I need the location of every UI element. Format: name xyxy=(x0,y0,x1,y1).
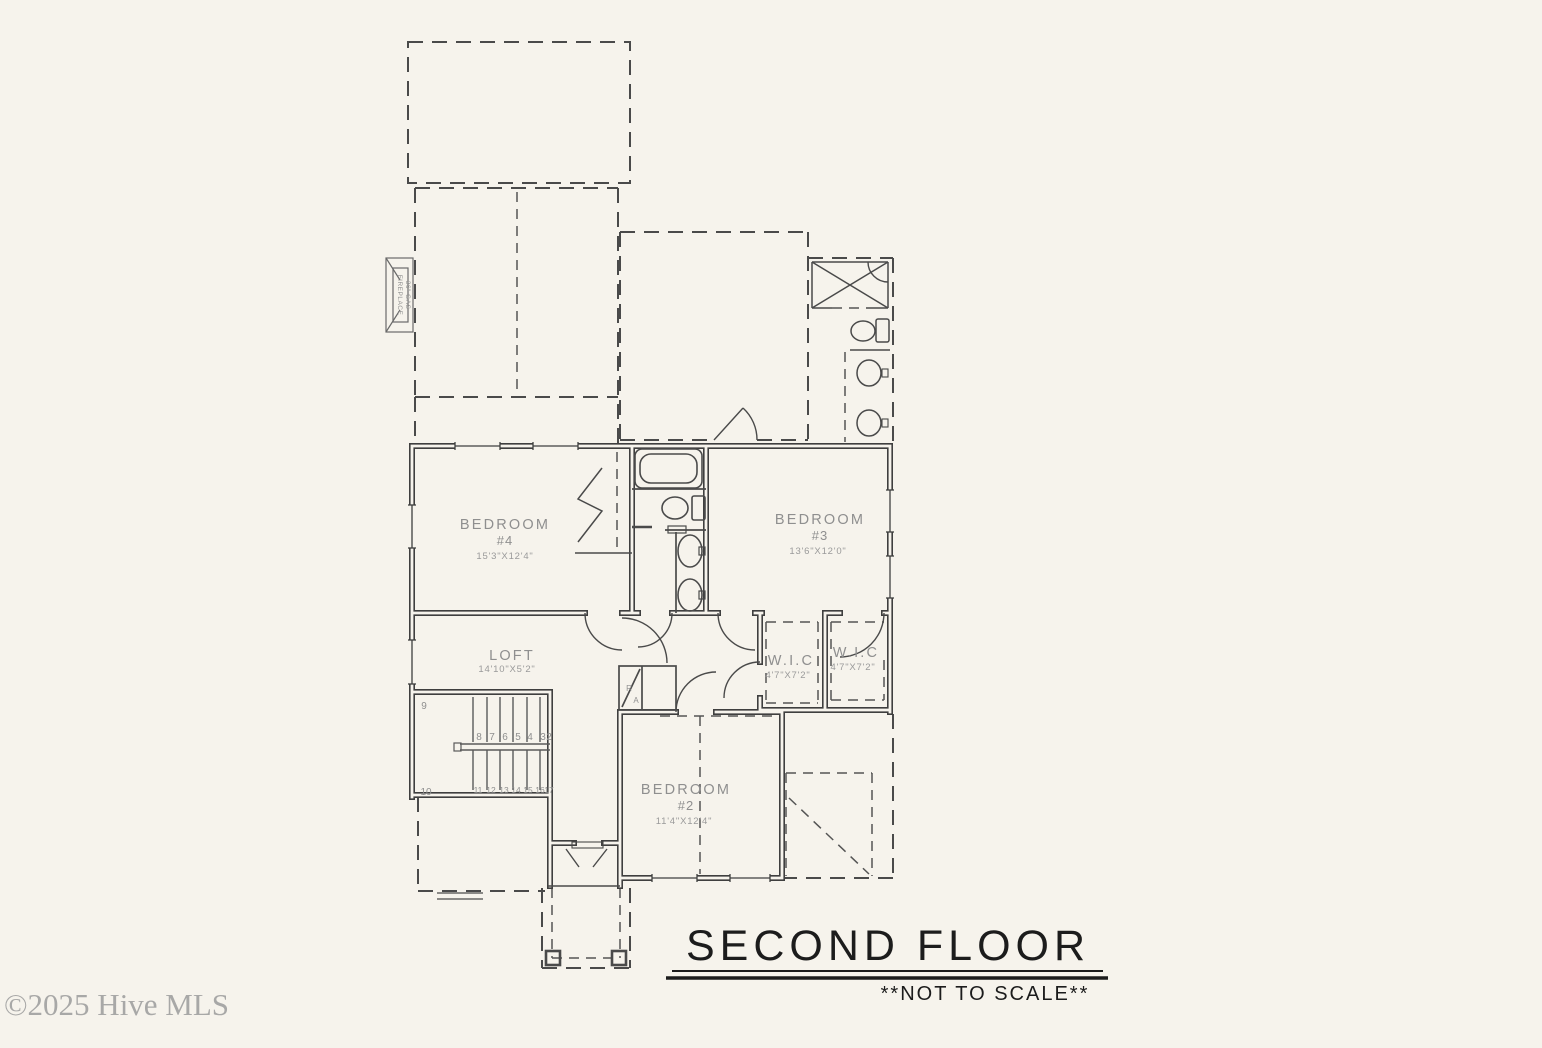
svg-text:LOFT: LOFT xyxy=(489,648,535,664)
floor-plan-canvas: BEDROOM #4 15'3"X12'4" BEDROOM #3 13'6"X… xyxy=(0,0,1542,1048)
svg-text:4'7"X7'2": 4'7"X7'2" xyxy=(765,670,810,681)
svg-text:A: A xyxy=(633,696,639,705)
svg-text:R: R xyxy=(626,684,632,693)
svg-text:#3: #3 xyxy=(812,528,828,543)
svg-text:W.I.C: W.I.C xyxy=(768,653,814,669)
primary-bathroom-fixtures xyxy=(812,262,890,436)
page-title: SECOND FLOOR xyxy=(686,922,1090,970)
svg-text:11: 11 xyxy=(474,785,483,795)
window-symbols xyxy=(408,442,894,882)
mls-watermark: ©2025 Hive MLS xyxy=(4,987,229,1022)
bedroom4-label: BEDROOM #4 15'3"X12'4" xyxy=(460,517,550,562)
svg-text:8: 8 xyxy=(476,732,482,743)
door-swings xyxy=(566,262,888,867)
title-block: SECOND FLOOR **NOT TO SCALE** xyxy=(666,922,1108,1005)
scale-note: **NOT TO SCALE** xyxy=(881,983,1090,1005)
svg-text:FIREPLACE: FIREPLACE xyxy=(396,275,403,316)
bedroom2-label: BEDROOM #2 11'4"X12'4" xyxy=(641,782,731,827)
loft-label: LOFT 14'10"X5'2" xyxy=(478,648,535,675)
svg-text:6: 6 xyxy=(502,732,508,743)
sink-icon xyxy=(857,410,881,436)
svg-text:15: 15 xyxy=(523,785,533,795)
floor-plan-page: BEDROOM #4 15'3"X12'4" BEDROOM #3 13'6"X… xyxy=(0,0,1542,1048)
svg-text:13: 13 xyxy=(499,785,509,795)
svg-text:9: 9 xyxy=(421,701,427,712)
svg-text:7: 7 xyxy=(489,732,495,743)
sink-icon xyxy=(857,360,881,386)
svg-text:2: 2 xyxy=(546,732,552,743)
svg-text:BEDROOM: BEDROOM xyxy=(641,782,731,798)
svg-text:10: 10 xyxy=(420,787,432,798)
svg-text:W.I.C: W.I.C xyxy=(833,645,879,661)
wic-left-label: W.I.C 4'7"X7'2" xyxy=(765,653,814,681)
roof-outline-dashed xyxy=(408,42,893,968)
staircase xyxy=(454,697,550,790)
svg-text:17: 17 xyxy=(544,785,554,795)
svg-text:#4: #4 xyxy=(497,533,513,548)
svg-text:14'10"X5'2": 14'10"X5'2" xyxy=(478,664,535,675)
fireplace-label: FIREPLACE 36" GAS xyxy=(396,275,411,316)
svg-text:#2: #2 xyxy=(678,798,694,813)
wic-right-label: W.I.C 4'7"X7'2" xyxy=(830,645,879,673)
svg-text:15'3"X12'4": 15'3"X12'4" xyxy=(476,551,533,562)
svg-text:4: 4 xyxy=(527,732,533,743)
bedroom3-label: BEDROOM #3 13'6"X12'0" xyxy=(775,512,865,557)
svg-text:BEDROOM: BEDROOM xyxy=(460,517,550,533)
toilet-icon xyxy=(851,321,875,341)
svg-text:11'4"X12'4": 11'4"X12'4" xyxy=(656,816,713,827)
svg-text:13'6"X12'0": 13'6"X12'0" xyxy=(789,546,846,557)
svg-text:4'7"X7'2": 4'7"X7'2" xyxy=(830,662,875,673)
svg-text:36" GAS: 36" GAS xyxy=(404,281,411,310)
svg-text:12: 12 xyxy=(486,785,496,795)
svg-text:5: 5 xyxy=(515,732,521,743)
svg-text:14: 14 xyxy=(511,785,521,795)
toilet-icon xyxy=(662,497,688,519)
svg-text:BEDROOM: BEDROOM xyxy=(775,512,865,528)
